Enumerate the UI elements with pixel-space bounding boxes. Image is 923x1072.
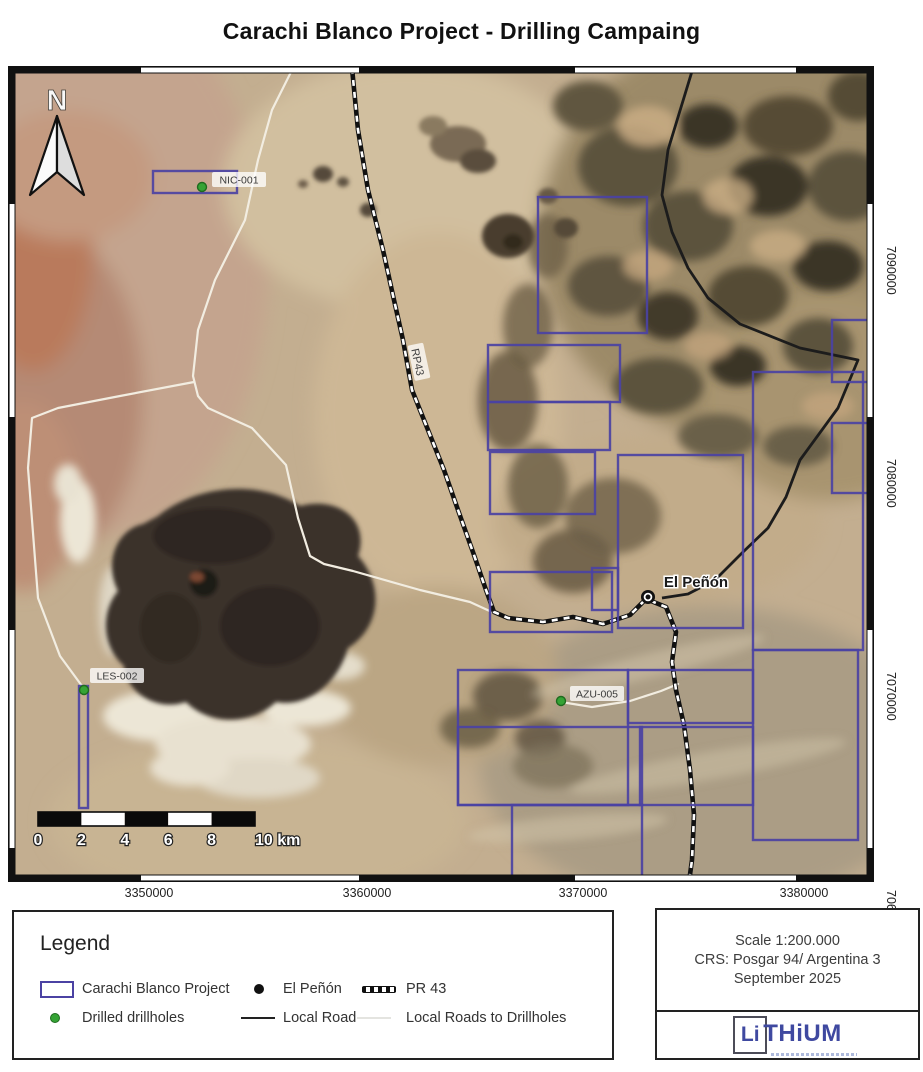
legend: Legend Carachi Blanco Project El Peñón P… (12, 910, 614, 1060)
scale-bar-segment (125, 812, 168, 826)
drillhole-dot[interactable] (198, 183, 207, 192)
legend-item-pr43: PR 43 (406, 981, 446, 997)
scale-text: Scale 1:200.000 (657, 932, 918, 951)
y-axis-label: 7090000 (884, 238, 898, 302)
y-axis-label: 7070000 (884, 664, 898, 728)
drillhole-dot-icon (50, 1013, 60, 1023)
dashed-road-icon (362, 986, 396, 993)
lithium-logo: Li THiUM (733, 1016, 841, 1054)
drillhole-label: LES-002 (97, 671, 138, 683)
town-dot[interactable] (641, 590, 655, 604)
solid-road-icon (241, 1017, 275, 1019)
legend-item-local-road: Local Road (283, 1010, 356, 1026)
map-canvas: NIC-001LES-002AZU-005El PeñónRP43 024681… (8, 66, 874, 882)
drillhole-label: NIC-001 (219, 175, 258, 187)
date-text: September 2025 (657, 970, 918, 989)
map-info-box: Scale 1:200.000 CRS: Posgar 94/ Argentin… (655, 908, 920, 1060)
legend-item-project: Carachi Blanco Project (82, 981, 230, 997)
x-axis-label: 3370000 (549, 886, 617, 900)
scale-bar-label: 4 (120, 832, 129, 849)
legend-title: Legend (40, 932, 110, 956)
legend-item-drillholes: Drilled drillholes (82, 1010, 184, 1026)
scale-bar-segment (168, 812, 211, 826)
scale-bar-label: 6 (164, 832, 173, 849)
north-arrow-label: N (47, 85, 68, 117)
scale-bar-label: 10 km (255, 832, 300, 849)
scale-bar-segment (38, 812, 81, 826)
scale-bar-segment (212, 812, 255, 826)
claim-swatch-icon (40, 981, 74, 998)
logo-tagline (771, 1053, 857, 1056)
logo-section: Li THiUM (657, 1010, 918, 1058)
drillhole-label: AZU-005 (576, 689, 618, 701)
x-axis-label: 3350000 (115, 886, 183, 900)
map-metadata: Scale 1:200.000 CRS: Posgar 94/ Argentin… (657, 910, 918, 1010)
scale-bar-label: 2 (77, 832, 86, 849)
logo-square: Li (733, 1016, 767, 1054)
town-label: El Peñón (664, 574, 728, 591)
scale-bar-label: 8 (207, 832, 216, 849)
page-title: Carachi Blanco Project - Drilling Campai… (0, 18, 923, 45)
scale-bar-label: 0 (34, 832, 43, 849)
light-road-icon (357, 1017, 391, 1019)
logo-text: THiUM (763, 1020, 841, 1048)
x-axis-label: 3360000 (333, 886, 401, 900)
drillhole-dot[interactable] (557, 697, 566, 706)
legend-item-town: El Peñón (283, 981, 342, 997)
legend-item-roads-to-drillholes: Local Roads to Drillholes (406, 1010, 566, 1026)
drillhole-dot[interactable] (80, 686, 89, 695)
crs-text: CRS: Posgar 94/ Argentina 3 (657, 951, 918, 970)
scale-bar-segment (81, 812, 124, 826)
y-axis-label: 7080000 (884, 451, 898, 515)
town-dot-icon (254, 984, 264, 994)
x-axis-label: 3380000 (770, 886, 838, 900)
map[interactable]: NIC-001LES-002AZU-005El PeñónRP43 024681… (8, 66, 874, 882)
